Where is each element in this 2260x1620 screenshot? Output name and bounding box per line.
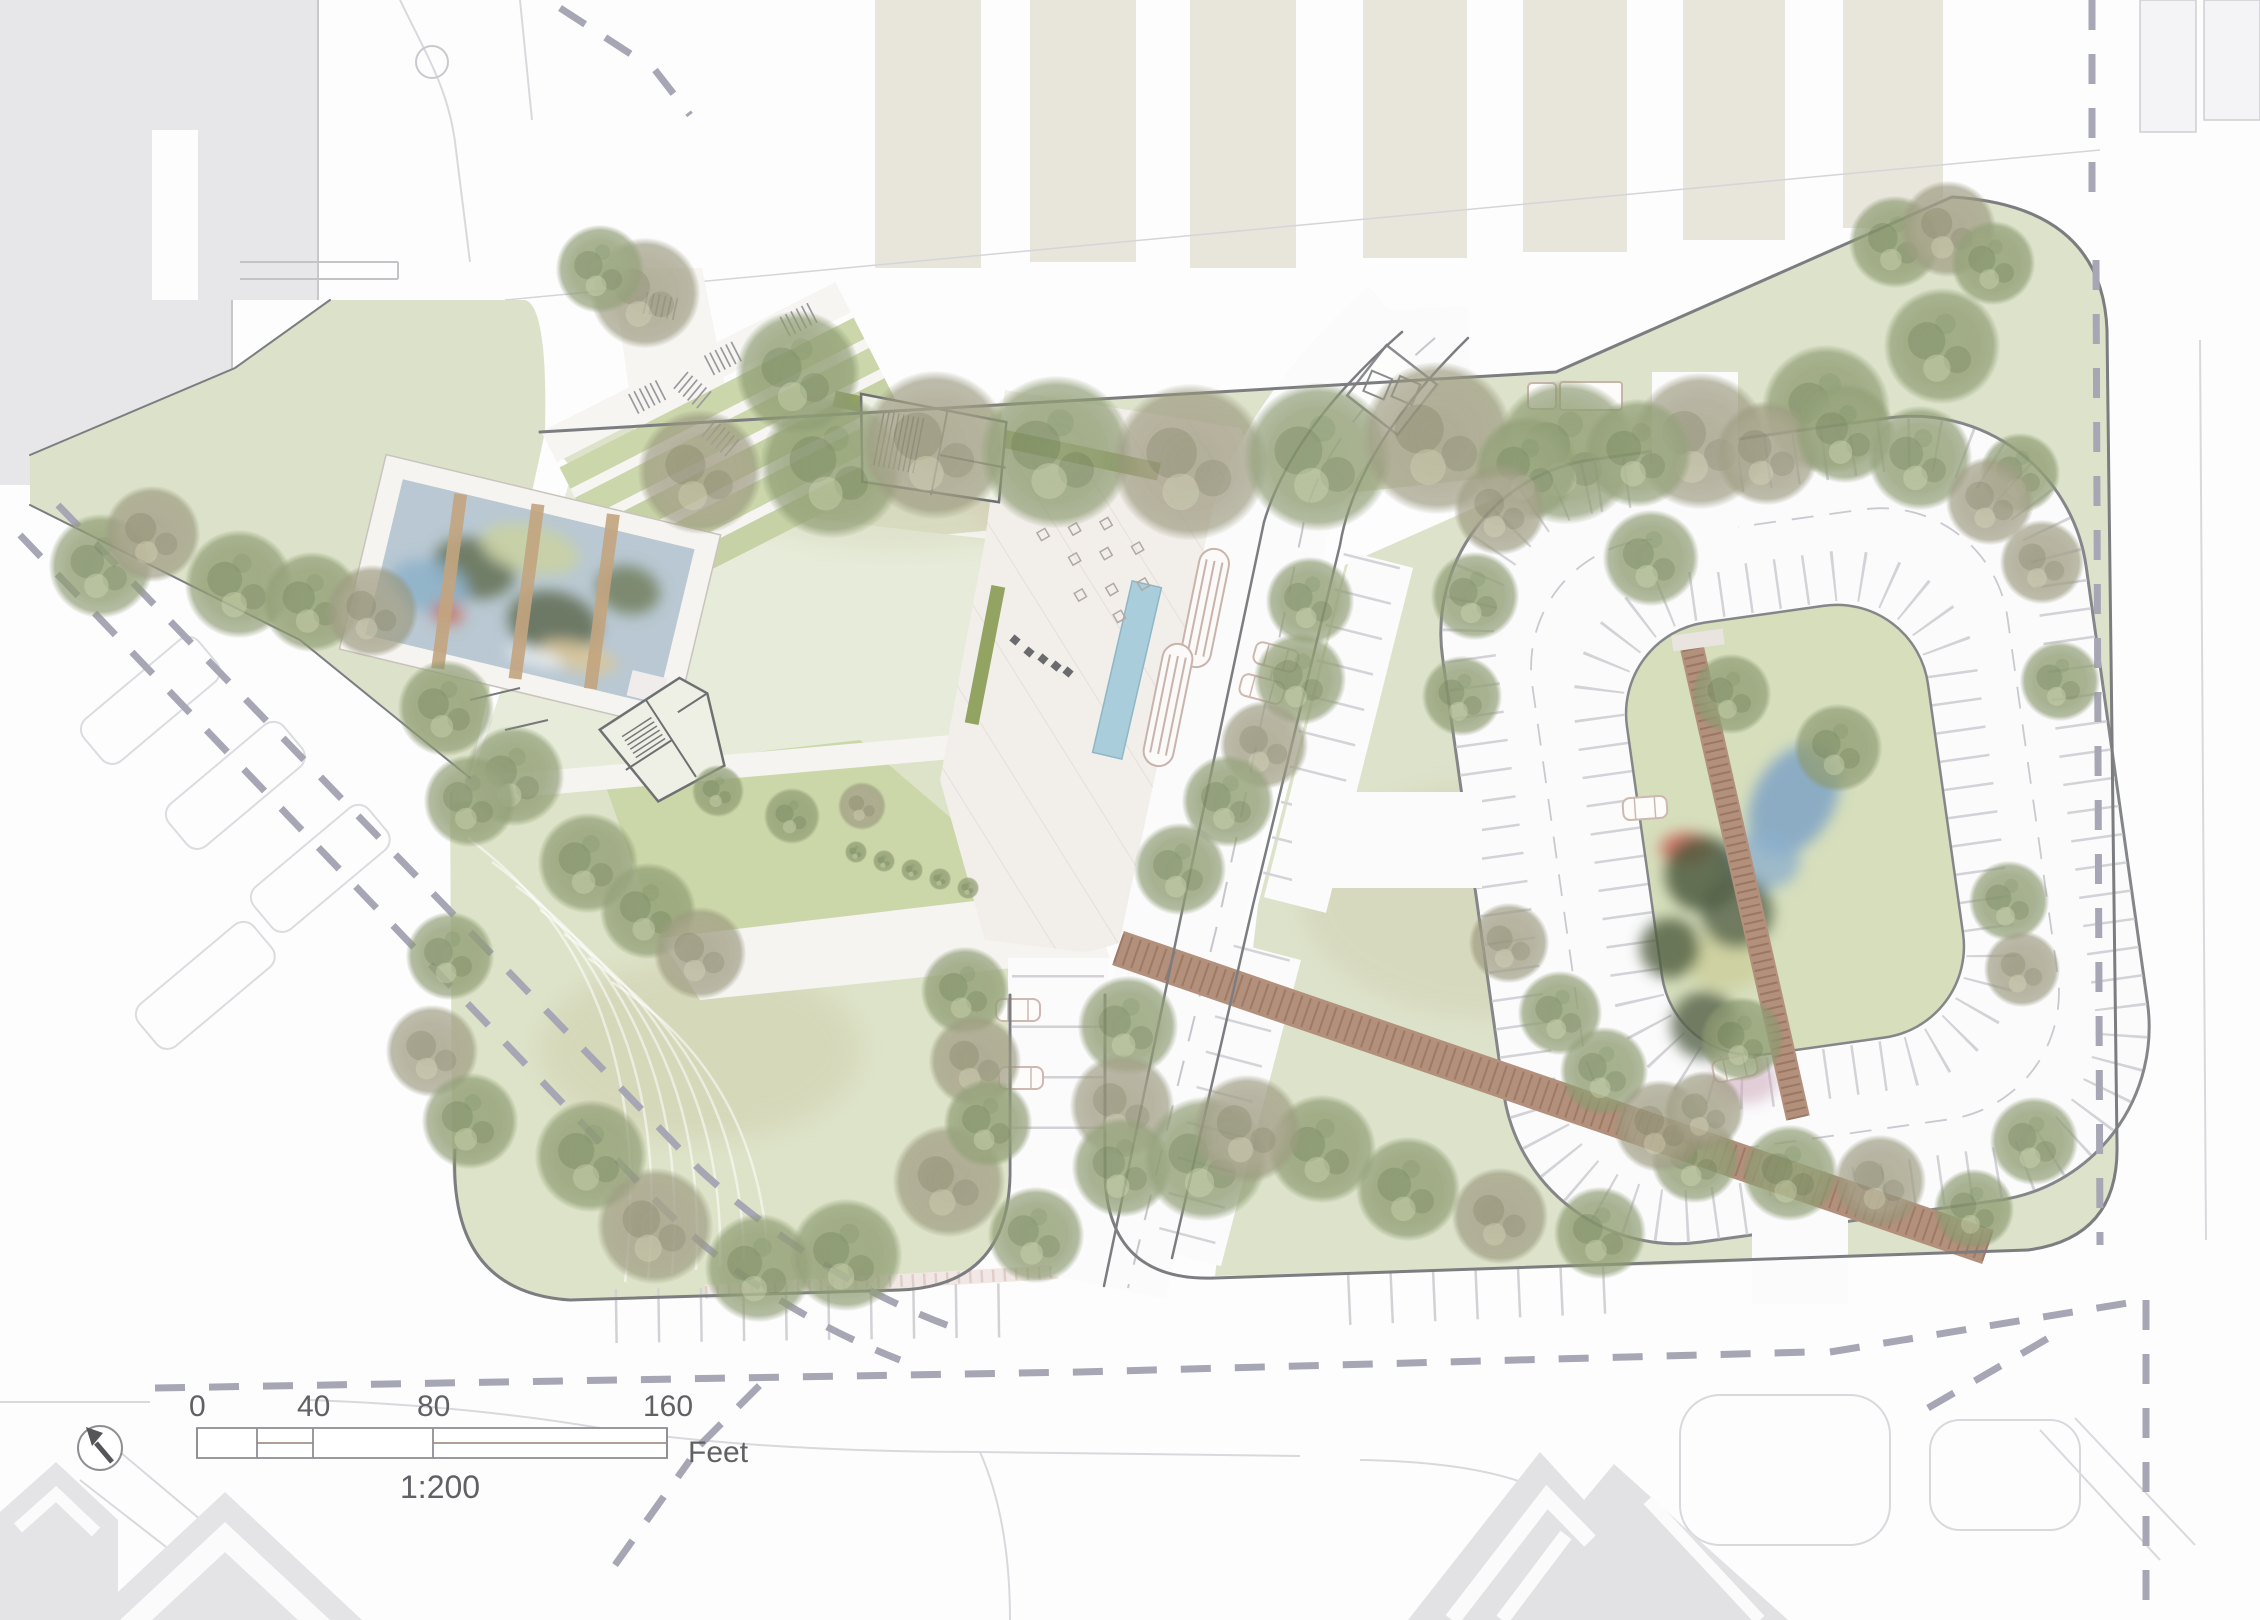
site-plan-drawing: 04080160 Feet 1:200 — [0, 0, 2260, 1620]
scale-tick-label: 40 — [297, 1390, 330, 1423]
tree-canopy — [1469, 903, 1549, 983]
tree-canopy — [1794, 704, 1882, 792]
tree-canopy — [2020, 641, 2100, 721]
context-buildings-south — [0, 1452, 1788, 1620]
tree-canopy — [1742, 1125, 1838, 1221]
tree-canopy — [1834, 1135, 1926, 1227]
tree-canopy — [556, 225, 644, 313]
tree-canopy — [424, 755, 516, 847]
tree-canopy — [1554, 1187, 1646, 1279]
tree-canopy — [654, 907, 746, 999]
tree-canopy — [1664, 1071, 1744, 1151]
tree-canopy — [597, 1168, 713, 1284]
tree-canopy — [957, 877, 979, 899]
car — [1622, 795, 1667, 820]
tree-canopy — [1134, 823, 1226, 915]
tree-canopy — [638, 410, 762, 534]
scale-bar: 04080160 Feet 1:200 — [189, 1390, 749, 1505]
tree-canopy — [1452, 1168, 1548, 1264]
tree-canopy — [873, 850, 895, 872]
scale-ratio-label: 1:200 — [400, 1469, 480, 1505]
tree-canopy — [406, 912, 494, 1000]
tree-canopy — [980, 376, 1132, 528]
tree-canopy — [1946, 457, 2034, 545]
tree-canopy — [692, 765, 744, 817]
tree-canopy — [1700, 997, 1784, 1081]
tree-canopy — [1422, 656, 1502, 736]
tree-canopy — [790, 1199, 902, 1311]
tree-canopy — [1266, 557, 1354, 645]
context-buildings-topright — [2140, 0, 2260, 132]
tree-canopy — [1951, 221, 2035, 305]
tree-canopy — [1934, 1169, 2014, 1249]
tree-canopy — [1984, 931, 2060, 1007]
scale-unit-label: Feet — [688, 1436, 749, 1469]
tree-canopy — [1969, 861, 2049, 941]
site-plan-canvas: 04080160 Feet 1:200 — [0, 0, 2260, 1620]
tree-canopy — [1990, 1097, 2078, 1185]
tree-canopy — [988, 1187, 1084, 1283]
tree-canopy — [1193, 1075, 1301, 1183]
tree-canopy — [1431, 552, 1519, 640]
scale-tick-label: 0 — [189, 1390, 206, 1423]
north-arrow-icon — [78, 1426, 122, 1470]
tree-canopy — [838, 782, 886, 830]
tree-canopy — [1884, 288, 2000, 404]
tree-canopy — [1603, 510, 1699, 606]
tree-canopy — [929, 868, 951, 890]
tree-canopy — [944, 1079, 1032, 1167]
tree-canopy — [901, 859, 923, 881]
scale-tick-label: 160 — [643, 1390, 693, 1423]
tree-canopy — [736, 311, 860, 435]
tree-canopy — [1691, 654, 1771, 734]
scale-tick-label: 80 — [417, 1390, 450, 1423]
tree-canopy — [1584, 399, 1692, 507]
tree-canopy — [422, 1073, 518, 1169]
tree-canopy — [104, 486, 200, 582]
tree-canopy — [845, 841, 867, 863]
tree-canopy — [764, 788, 820, 844]
tree-canopy — [1454, 463, 1546, 555]
tree-canopy — [326, 565, 418, 657]
